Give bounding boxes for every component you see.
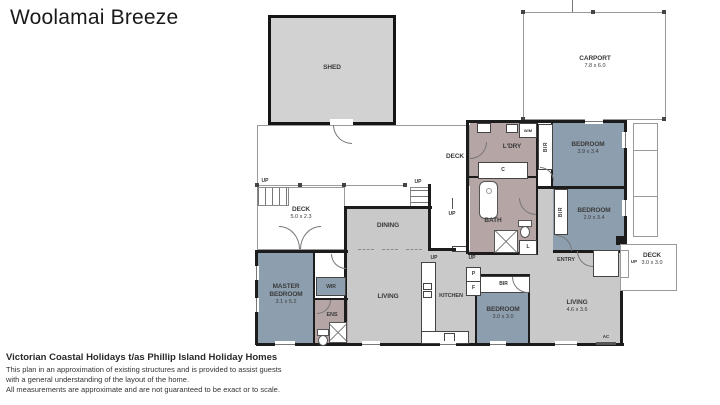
- up-label: UP: [426, 254, 442, 262]
- ac-label: AC: [596, 333, 616, 341]
- room-label: DECK: [292, 206, 310, 214]
- wall: [428, 184, 431, 251]
- divider-dash: [382, 249, 398, 250]
- room-label: WIR: [326, 284, 335, 290]
- laundry-trough-icon: [506, 124, 518, 133]
- room-label: CARPORT: [579, 55, 610, 63]
- room-bedroom2: BEDROOM 2.9 x 3.4: [562, 207, 626, 221]
- carport-post-icon: [521, 10, 525, 14]
- room-label: DINING: [377, 222, 399, 230]
- divider-dash: [406, 249, 422, 250]
- footer-disclaimer-2: with a general understanding of the layo…: [6, 375, 566, 385]
- up-label: UP: [444, 210, 460, 218]
- wir-robe: WIR: [316, 277, 346, 296]
- room-label: BATH: [484, 217, 501, 225]
- room-kitchen: KITCHEN: [434, 293, 468, 300]
- room-dims: 3.0 x 3.0: [492, 314, 513, 320]
- room-dims: 3.9 x 3.4: [577, 149, 598, 155]
- entry-porch: [593, 250, 619, 277]
- room-label: DECK: [446, 153, 464, 161]
- window-marker: [622, 132, 628, 148]
- window-marker: [490, 341, 506, 347]
- room-label: KITCHEN: [439, 293, 463, 300]
- shower-icon: [329, 322, 347, 343]
- room-dims: 7.8 x 6.0: [584, 63, 605, 69]
- wall: [538, 186, 627, 189]
- room-label: BEDROOM: [577, 207, 610, 215]
- walkway-divider: [633, 150, 658, 151]
- room-master-bedroom: MASTER BEDROOM 3.1 x 5.2: [262, 283, 310, 305]
- footer: Victorian Coastal Holidays t/as Phillip …: [6, 352, 566, 395]
- room-dining: DINING: [358, 222, 418, 230]
- wall: [466, 120, 469, 254]
- footer-disclaimer-1: This plan in an approximation of existin…: [6, 365, 566, 375]
- ac-unit-icon: [596, 342, 616, 345]
- wall: [428, 248, 456, 251]
- room-bath: BATH: [478, 217, 508, 225]
- deck-post-icon: [403, 183, 407, 187]
- toilet-icon: [318, 335, 328, 346]
- room-ensuite: ENS: [318, 312, 346, 319]
- room-label: LIVING: [566, 299, 587, 307]
- room-bedroom3: BEDROOM 3.0 x 3.0: [478, 306, 528, 320]
- room-label: MASTER BEDROOM: [262, 283, 310, 299]
- room-label: ENTRY: [557, 257, 575, 264]
- room-label: ENS: [326, 312, 337, 319]
- room-label: BEDROOM: [486, 306, 519, 314]
- room-dims: 3.1 x 5.2: [275, 299, 296, 305]
- walkway-outline: [633, 123, 658, 237]
- carport-post-icon: [662, 10, 666, 14]
- up-arrow-icon: [452, 198, 453, 209]
- room-dims: 3.0 x 3.0: [641, 260, 662, 266]
- room-label: BEDROOM: [571, 141, 604, 149]
- room-dims: 5.0 x 2.3: [290, 214, 311, 220]
- window-marker: [440, 341, 456, 347]
- deck-edge-line: [257, 185, 407, 186]
- footer-disclaimer-3: All measurements are approximate and are…: [6, 385, 566, 395]
- window-marker: [555, 341, 577, 347]
- room-living-main: LIVING: [358, 293, 418, 301]
- room-label: L'DRY: [503, 143, 522, 151]
- window-marker: [362, 341, 380, 347]
- bir-closet: BIR: [538, 124, 553, 170]
- shower-icon: [494, 230, 518, 253]
- walkway-divider: [633, 196, 658, 197]
- room-laundry: L'DRY: [488, 143, 536, 151]
- bedroom1-floor: [551, 122, 624, 188]
- carport-post-icon: [591, 10, 595, 14]
- room-entry: ENTRY: [549, 257, 583, 264]
- window-marker: [253, 266, 259, 280]
- sink-icon: [423, 291, 432, 298]
- bathtub-icon: [479, 181, 498, 219]
- up-label: UP: [411, 178, 425, 186]
- wall: [344, 206, 432, 209]
- up-label: UP: [628, 258, 640, 266]
- window-marker: [275, 341, 295, 347]
- washing-machine: W/M: [519, 123, 537, 138]
- room-shed: SHED: [302, 64, 362, 72]
- room-label: SHED: [323, 64, 341, 72]
- room-dims: 2.9 x 3.4: [583, 215, 604, 221]
- room-label: DECK: [643, 252, 661, 260]
- room-living2: LIVING 4.6 x 3.6: [548, 299, 606, 313]
- room-dims: 4.6 x 3.6: [566, 307, 587, 313]
- toilet-icon: [520, 226, 530, 238]
- up-label: UP: [258, 177, 272, 185]
- divider-dash: [358, 249, 374, 250]
- stairs-icon: [257, 187, 289, 206]
- footer-company: Victorian Coastal Holidays t/as Phillip …: [6, 352, 566, 363]
- closet: C: [478, 162, 528, 179]
- window-marker: [253, 298, 259, 312]
- wall: [256, 250, 348, 253]
- room-bedroom1: BEDROOM 3.9 x 3.4: [556, 141, 620, 155]
- room-label: LIVING: [377, 293, 398, 301]
- room-carport: CARPORT 7.8 x 6.0: [560, 55, 630, 69]
- window-marker: [585, 118, 603, 124]
- laundry-trough-icon: [477, 123, 491, 133]
- linen-closet: L: [519, 240, 537, 255]
- floor-plan: CARPORT 7.8 x 6.0 DECK DECK 5.0 x 2.3 UP…: [0, 0, 720, 405]
- up-label: UP: [464, 254, 480, 262]
- room-deck-left: DECK 5.0 x 2.3: [266, 206, 336, 220]
- sink-icon: [423, 283, 432, 290]
- landing-floor: [430, 186, 470, 250]
- fridge: F: [466, 281, 481, 296]
- pantry: P: [466, 267, 481, 282]
- carport-post-icon: [662, 117, 666, 121]
